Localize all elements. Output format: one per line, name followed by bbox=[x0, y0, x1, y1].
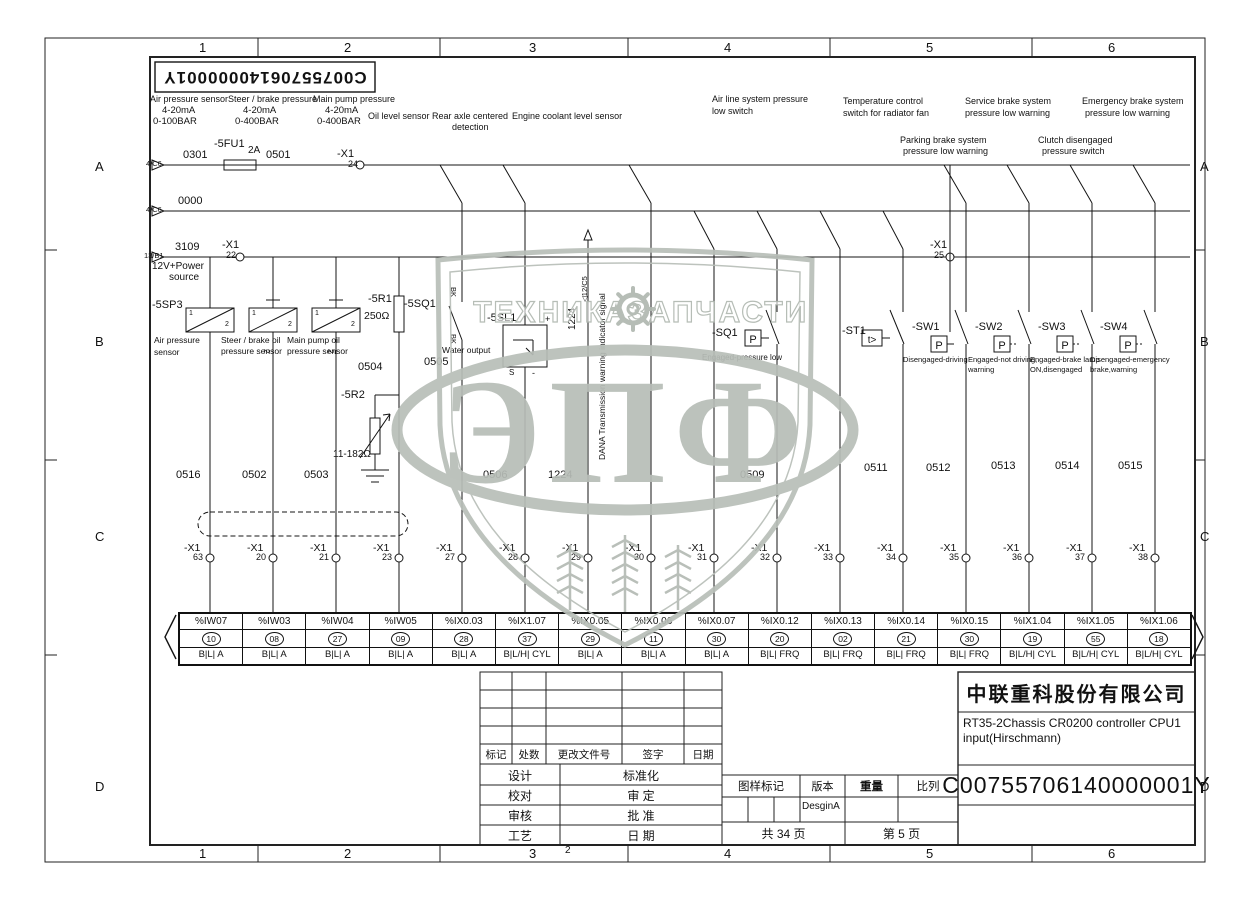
plc-pin-number: 55 bbox=[1086, 632, 1105, 646]
pressure-switch-SQ1 bbox=[745, 211, 779, 612]
plc-pin-row: 37 bbox=[496, 630, 558, 648]
drawing-frame bbox=[45, 38, 1205, 862]
plc-pin-row: 21 bbox=[875, 630, 937, 648]
plc-pin-row: 18 bbox=[1128, 630, 1190, 648]
ground-icon bbox=[361, 470, 389, 482]
plc-pin-row: 55 bbox=[1065, 630, 1127, 648]
plc-address: %IX0.12 bbox=[749, 614, 811, 630]
plc-channel-%IX0.12: %IX0.1220B|L| FRQ bbox=[749, 614, 812, 664]
plc-address: %IX0.03 bbox=[433, 614, 495, 630]
ref-arrow-icon bbox=[152, 252, 164, 262]
mirrored-number-box bbox=[155, 62, 375, 92]
plc-pin-number: 21 bbox=[897, 632, 916, 646]
plc-signal-type: B|L| FRQ bbox=[812, 648, 874, 664]
plc-address: %IW03 bbox=[243, 614, 305, 630]
plc-pin-number: 08 bbox=[265, 632, 284, 646]
plc-signal-type: B|L| A bbox=[243, 648, 305, 664]
ref-arrow-icon bbox=[152, 160, 164, 170]
plc-signal-type: B|L| A bbox=[622, 648, 684, 664]
plc-pin-row: 19 bbox=[1001, 630, 1063, 648]
plc-pin-row: 20 bbox=[749, 630, 811, 648]
pressure-symbol-SW3: P bbox=[1061, 340, 1068, 352]
plc-address: %IX1.04 bbox=[1001, 614, 1063, 630]
level-switch-5SQ1 bbox=[440, 165, 462, 612]
plc-channel-%IX0.07: %IX0.0730B|L| A bbox=[686, 614, 749, 664]
plc-signal-type: B|L| A bbox=[306, 648, 368, 664]
plc-channel-%IW07: %IW0710B|L| A bbox=[180, 614, 243, 664]
plc-channel-%IX1.05: %IX1.0555B|L/H| CYL bbox=[1065, 614, 1128, 664]
plc-pin-number: 27 bbox=[328, 632, 347, 646]
temperature-switch-ST1 bbox=[862, 211, 904, 612]
plc-pin-row: 09 bbox=[370, 630, 432, 648]
plc-pin-number: 02 bbox=[833, 632, 852, 646]
plc-pin-number: 28 bbox=[454, 632, 473, 646]
title-block-lines bbox=[480, 672, 1195, 845]
plc-signal-type: B|L| FRQ bbox=[875, 648, 937, 664]
switch-symbol-letters: P P P P P t> bbox=[749, 334, 1131, 352]
plc-pin-row: 27 bbox=[306, 630, 368, 648]
plc-pin-number: 18 bbox=[1149, 632, 1168, 646]
plain-drops bbox=[629, 165, 950, 612]
pressure-symbol-SQ1: P bbox=[749, 334, 756, 346]
terminal-X1-24 bbox=[356, 161, 364, 169]
terminal-circles bbox=[206, 554, 1159, 562]
schematic-lines: P P P P P t> bbox=[0, 0, 1248, 901]
power-rails bbox=[152, 160, 1190, 262]
plc-pin-row: 29 bbox=[559, 630, 621, 648]
pressure-symbol-SW4: P bbox=[1124, 340, 1131, 352]
ref-arrow-up-icon bbox=[584, 230, 592, 240]
plc-signal-type: B|L| A bbox=[433, 648, 495, 664]
plc-pin-number: 11 bbox=[644, 632, 663, 646]
plc-signal-type: B|L/H| CYL bbox=[496, 648, 558, 664]
plc-signal-type: B|L| FRQ bbox=[749, 648, 811, 664]
plc-address: %IW04 bbox=[306, 614, 368, 630]
plc-channel-%IX0.15: %IX0.1530B|L| FRQ bbox=[938, 614, 1001, 664]
plc-signal-type: B|L/H| CYL bbox=[1001, 648, 1063, 664]
plc-pin-row: 30 bbox=[686, 630, 748, 648]
plc-pin-number: 30 bbox=[707, 632, 726, 646]
plc-pin-row: 11 bbox=[622, 630, 684, 648]
float-switch-5SL1 bbox=[503, 165, 547, 612]
plc-address: %IW07 bbox=[180, 614, 242, 630]
plc-pin-number: 20 bbox=[770, 632, 789, 646]
plc-address: %IX0.15 bbox=[938, 614, 1000, 630]
plc-channel-%IW05: %IW0509B|L| A bbox=[370, 614, 433, 664]
plc-address: %IX0.05 bbox=[559, 614, 621, 630]
cable-shield-dashed-box bbox=[198, 512, 408, 536]
plc-pin-row: 02 bbox=[812, 630, 874, 648]
plc-signal-type: B|L| FRQ bbox=[938, 648, 1000, 664]
pressure-symbol-SW1: P bbox=[935, 340, 942, 352]
schematic-sheet: P P P P P t> %IW0710B|L| A%IW0308B|L| A%… bbox=[0, 0, 1248, 901]
plc-pin-number: 19 bbox=[1023, 632, 1042, 646]
plc-signal-type: B|L| A bbox=[180, 648, 242, 664]
pressure-symbol-SW2: P bbox=[998, 340, 1005, 352]
temperature-symbol-ST1: t> bbox=[868, 335, 877, 346]
plc-channel-%IX0.13: %IX0.1302B|L| FRQ bbox=[812, 614, 875, 664]
plc-channel-%IX1.04: %IX1.0419B|L/H| CYL bbox=[1001, 614, 1064, 664]
plc-signal-type: B|L/H| CYL bbox=[1065, 648, 1127, 664]
plc-pin-row: 30 bbox=[938, 630, 1000, 648]
plc-channel-%IW04: %IW0427B|L| A bbox=[306, 614, 369, 664]
pressure-switches-SW bbox=[931, 165, 1157, 612]
plc-signal-type: B|L| A bbox=[686, 648, 748, 664]
plc-address: %IW05 bbox=[370, 614, 432, 630]
plc-pin-number: 30 bbox=[960, 632, 979, 646]
plc-pin-row: 08 bbox=[243, 630, 305, 648]
plc-address: %IX1.06 bbox=[1128, 614, 1190, 630]
plc-channel-%IX0.06: %IX0.0611B|L| A bbox=[622, 614, 685, 664]
plc-channel-%IX0.05: %IX0.0529B|L| A bbox=[559, 614, 622, 664]
plc-address: %IX0.07 bbox=[686, 614, 748, 630]
resistor-5R2-and-ground bbox=[360, 395, 399, 482]
plc-address: %IX0.06 bbox=[622, 614, 684, 630]
plc-signal-type: B|L/H| CYL bbox=[1128, 648, 1190, 664]
plc-channel-%IX0.03: %IX0.0328B|L| A bbox=[433, 614, 496, 664]
plc-channel-%IX1.07: %IX1.0737B|L/H| CYL bbox=[496, 614, 559, 664]
plc-address: %IX1.05 bbox=[1065, 614, 1127, 630]
plc-channel-%IW03: %IW0308B|L| A bbox=[243, 614, 306, 664]
plc-channel-%IX1.06: %IX1.0618B|L/H| CYL bbox=[1128, 614, 1190, 664]
plc-signal-type: B|L| A bbox=[370, 648, 432, 664]
plc-address: %IX1.07 bbox=[496, 614, 558, 630]
plc-pin-row: 28 bbox=[433, 630, 495, 648]
plc-address: %IX0.13 bbox=[812, 614, 874, 630]
terminal-X1-22 bbox=[236, 253, 244, 261]
plc-signal-type: B|L| A bbox=[559, 648, 621, 664]
plc-address: %IX0.14 bbox=[875, 614, 937, 630]
plc-pin-number: 37 bbox=[518, 632, 537, 646]
plc-pin-number: 09 bbox=[391, 632, 410, 646]
plc-pin-row: 10 bbox=[180, 630, 242, 648]
variable-arrow-icon bbox=[360, 414, 390, 458]
ref-arrow-icon bbox=[152, 206, 164, 216]
plc-channel-%IX0.14: %IX0.1421B|L| FRQ bbox=[875, 614, 938, 664]
plc-pin-number: 10 bbox=[202, 632, 221, 646]
plc-pin-number: 29 bbox=[581, 632, 600, 646]
plc-io-table: %IW0710B|L| A%IW0308B|L| A%IW0427B|L| A%… bbox=[178, 612, 1192, 666]
